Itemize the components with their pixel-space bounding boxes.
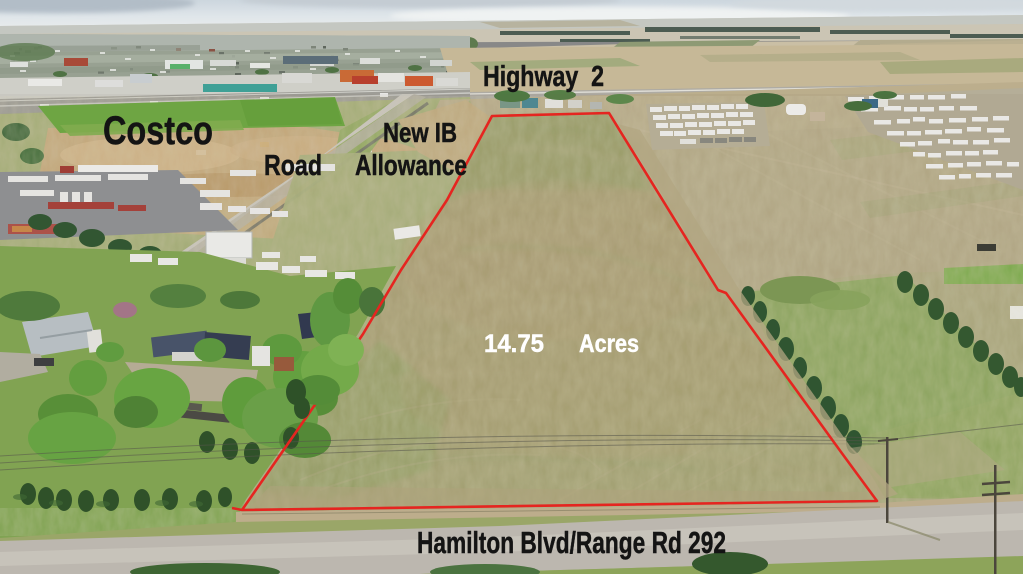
- svg-text:Hamilton Blvd/Range Rd 292: Hamilton Blvd/Range Rd 292: [417, 525, 726, 560]
- svg-text:Road: Road: [264, 150, 322, 182]
- svg-text:Costco: Costco: [103, 109, 213, 153]
- svg-text:Allowance: Allowance: [355, 150, 467, 182]
- svg-text:New IB: New IB: [383, 117, 457, 148]
- svg-text:Highway 2: Highway 2: [483, 61, 604, 93]
- svg-text:Acres: Acres: [579, 330, 639, 358]
- svg-text:14.75: 14.75: [484, 330, 544, 358]
